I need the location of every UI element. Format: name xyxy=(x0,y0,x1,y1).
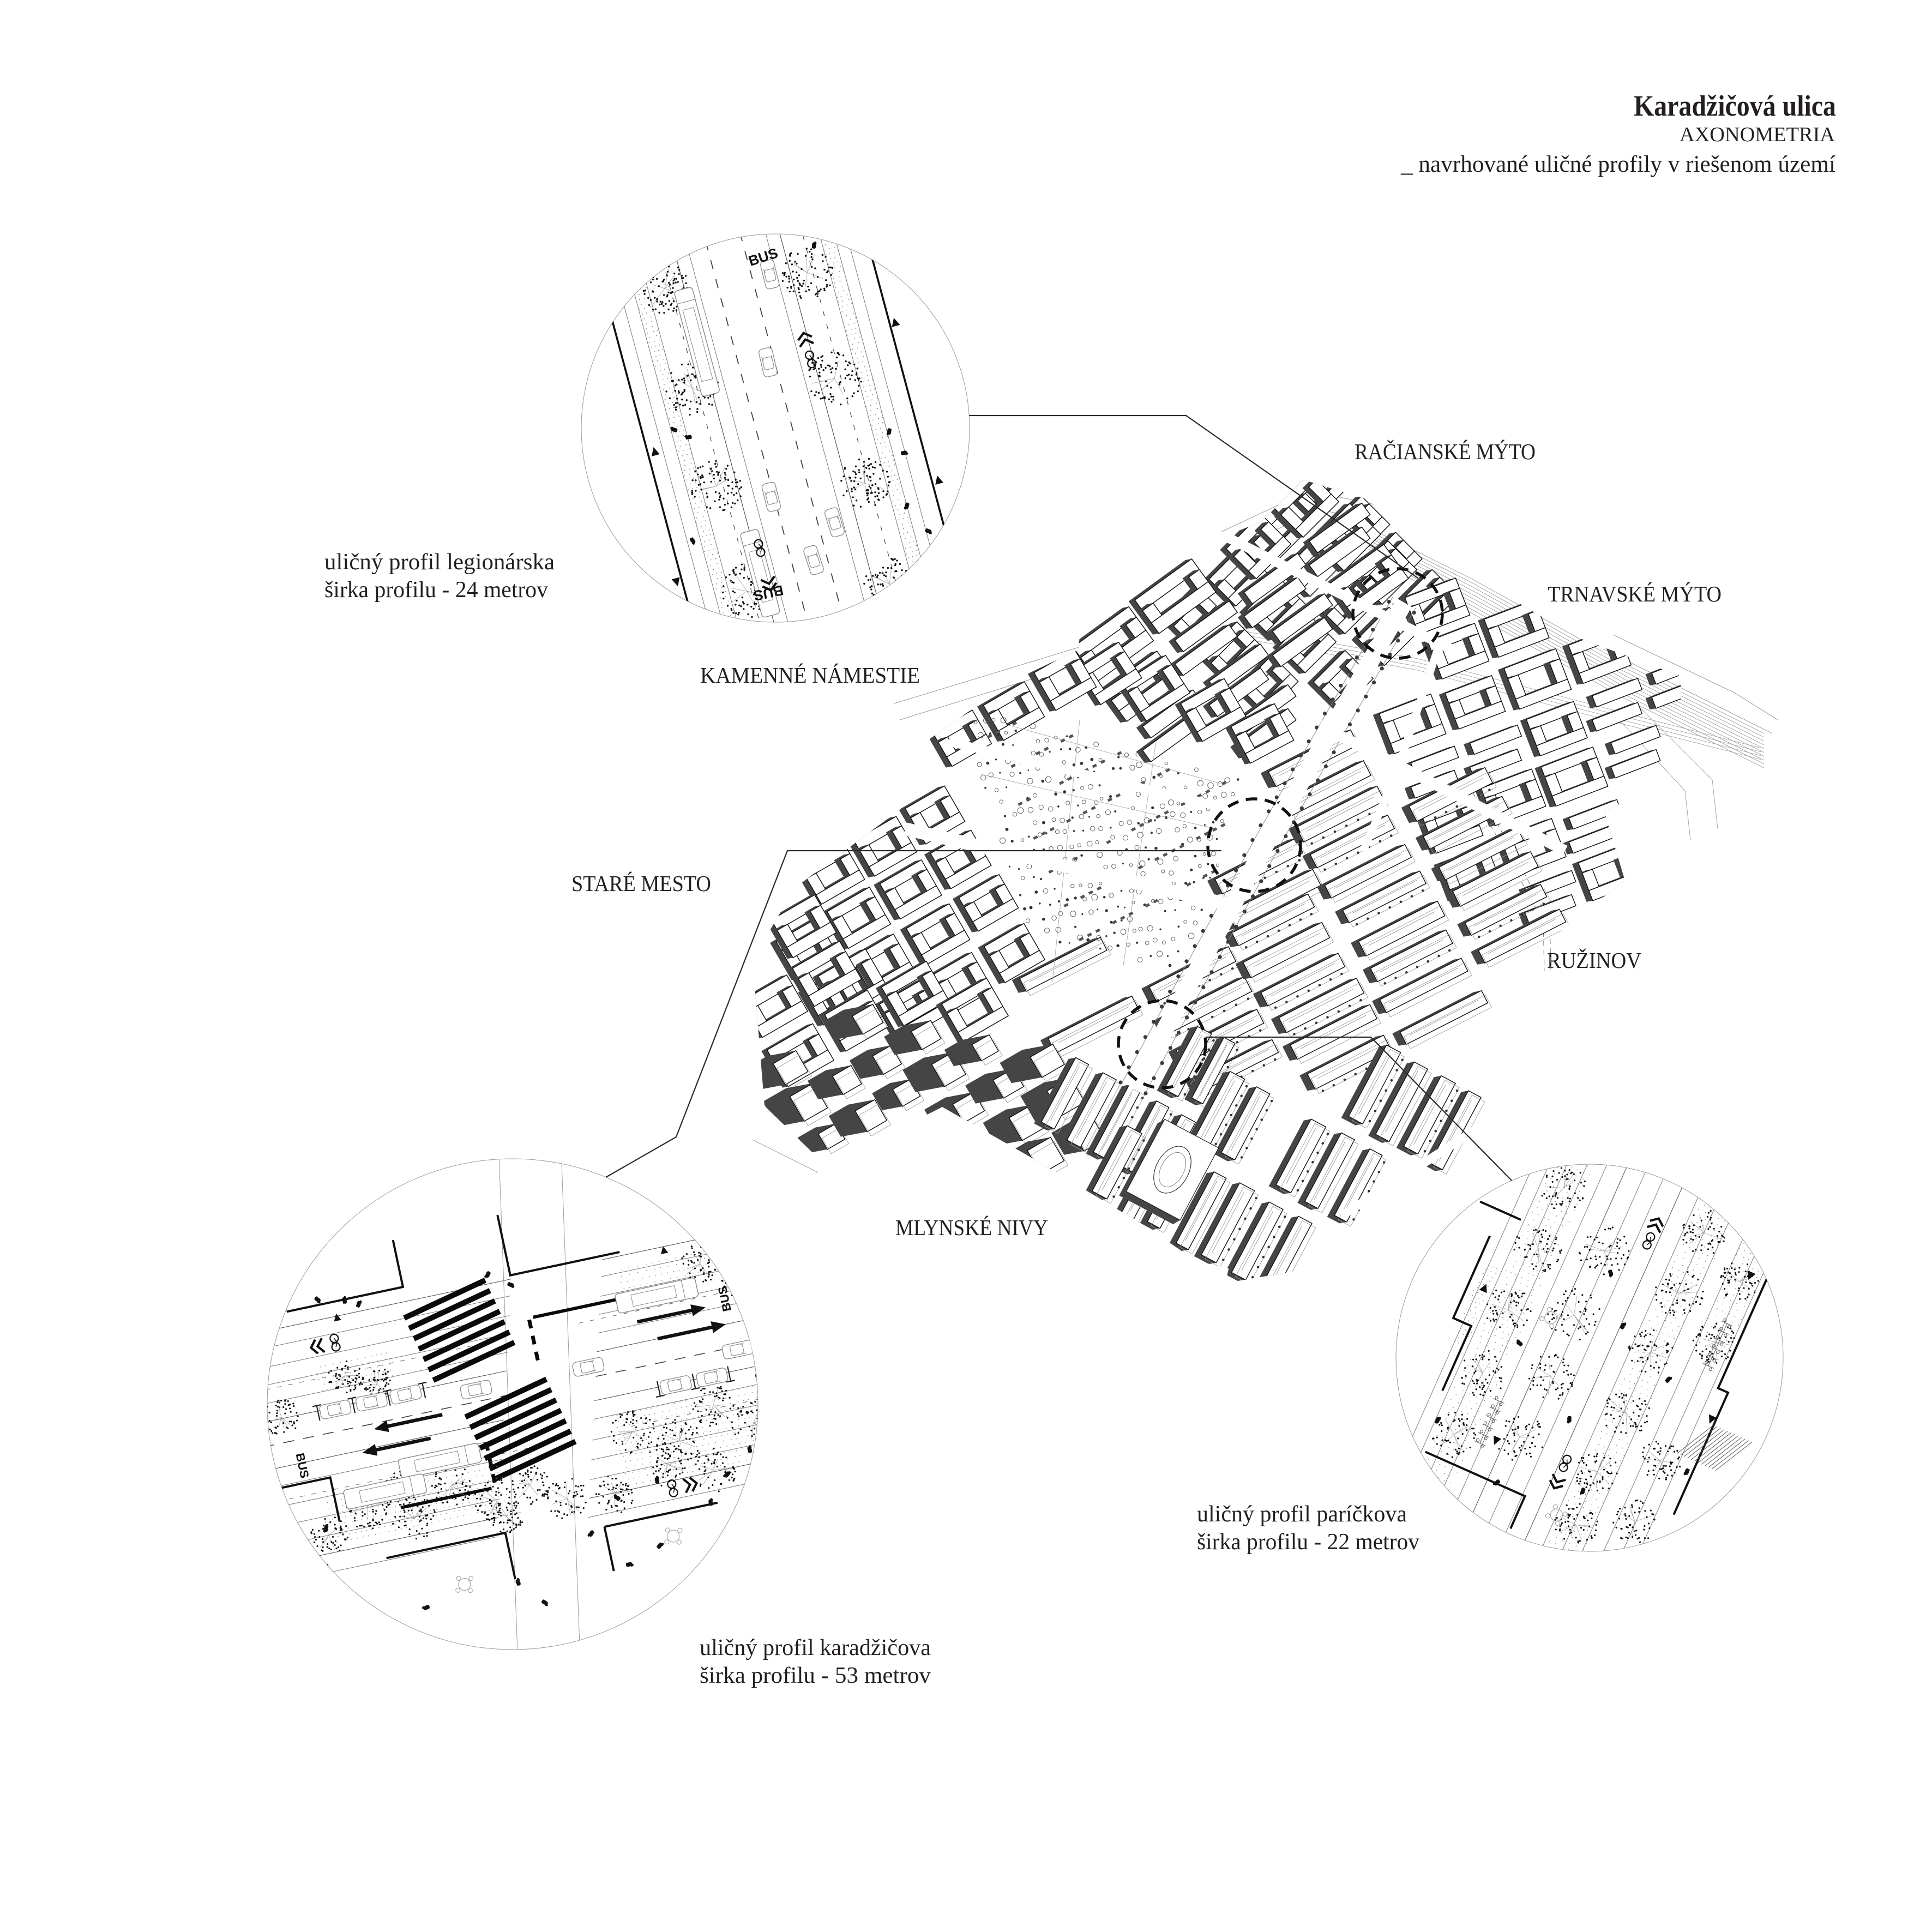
svg-text:Karadžičová ulica: Karadžičová ulica xyxy=(1634,89,1836,122)
svg-text:uličný profil legionárska: uličný profil legionárska xyxy=(324,550,555,575)
svg-text:STARÉ MESTO: STARÉ MESTO xyxy=(571,871,711,896)
svg-text:RUŽINOV: RUŽINOV xyxy=(1547,948,1641,973)
svg-text:TRNAVSKÉ MÝTO: TRNAVSKÉ MÝTO xyxy=(1548,581,1722,606)
svg-text:MLYNSKÉ NIVY: MLYNSKÉ NIVY xyxy=(895,1215,1048,1240)
svg-text:AXONOMETRIA: AXONOMETRIA xyxy=(1680,123,1835,146)
svg-text:širka profilu - 22 metrov: širka profilu - 22 metrov xyxy=(1197,1530,1419,1555)
svg-text:širka profilu - 53 metrov: širka profilu - 53 metrov xyxy=(700,1663,931,1688)
svg-text:RAČIANSKÉ MÝTO: RAČIANSKÉ MÝTO xyxy=(1355,439,1536,464)
svg-text:_ navrhované uličné profily v: _ navrhované uličné profily v riešenom ú… xyxy=(1400,152,1835,177)
svg-text:KAMENNÉ NÁMESTIE: KAMENNÉ NÁMESTIE xyxy=(700,663,920,688)
svg-text:uličný profil paríčkova: uličný profil paríčkova xyxy=(1197,1502,1407,1527)
svg-text:širka profilu - 24 metrov: širka profilu - 24 metrov xyxy=(324,577,548,603)
svg-text:uličný profil karadžičova: uličný profil karadžičova xyxy=(700,1635,931,1660)
